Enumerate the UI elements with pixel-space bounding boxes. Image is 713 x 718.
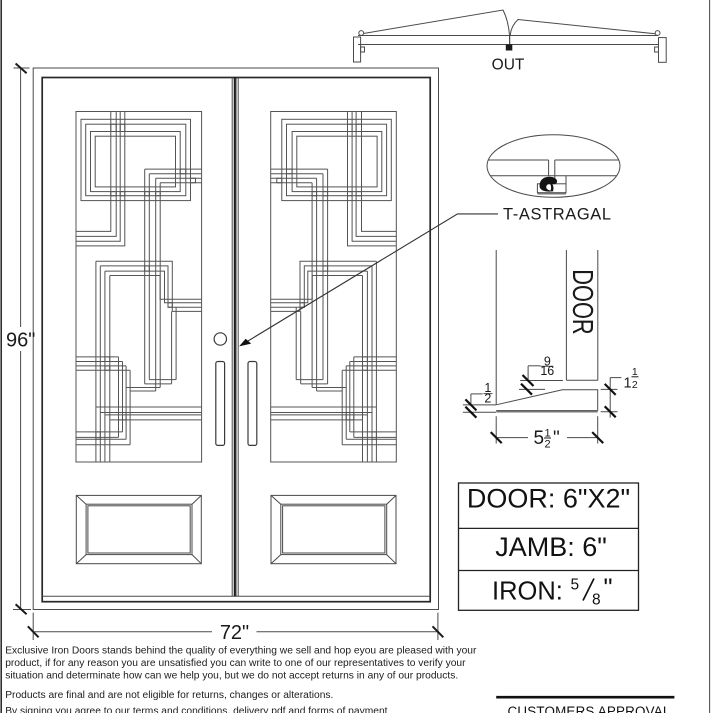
svg-text:": " — [604, 575, 613, 603]
svg-text:5: 5 — [534, 428, 545, 449]
svg-text:CUSTOMERS APPROVAL: CUSTOMERS APPROVAL — [507, 704, 670, 713]
svg-text:1: 1 — [624, 375, 632, 391]
svg-text:72": 72" — [220, 622, 249, 644]
svg-text:Exclusive Iron Doors stands be: Exclusive Iron Doors stands behind the q… — [5, 646, 477, 657]
svg-text:1: 1 — [632, 366, 638, 378]
svg-text:": " — [553, 428, 560, 449]
svg-text:product, if for any reason you: product, if for any reason you are unsat… — [5, 658, 466, 669]
svg-text:By signing you agree to our te: By signing you agree to our terms and co… — [5, 706, 387, 713]
svg-text:JAMB: 6": JAMB: 6" — [495, 532, 607, 562]
svg-text:8: 8 — [592, 592, 601, 609]
svg-text:Products are final and are not: Products are final and are not eligible … — [5, 690, 333, 701]
svg-text:16: 16 — [540, 364, 554, 378]
svg-text:OUT: OUT — [492, 57, 525, 74]
svg-text:DOOR: 6"X2": DOOR: 6"X2" — [467, 484, 630, 514]
svg-text:2: 2 — [544, 439, 550, 451]
svg-text:5: 5 — [571, 577, 580, 594]
svg-text:96": 96" — [6, 329, 35, 351]
svg-text:T-ASTRAGAL: T-ASTRAGAL — [503, 206, 612, 224]
svg-text:IRON:: IRON: — [492, 578, 563, 606]
svg-text:2: 2 — [484, 392, 491, 406]
svg-text:situation and determinate how: situation and determinate how can we hel… — [5, 671, 458, 682]
svg-text:2: 2 — [632, 379, 638, 391]
svg-text:DOOR: DOOR — [566, 269, 598, 335]
